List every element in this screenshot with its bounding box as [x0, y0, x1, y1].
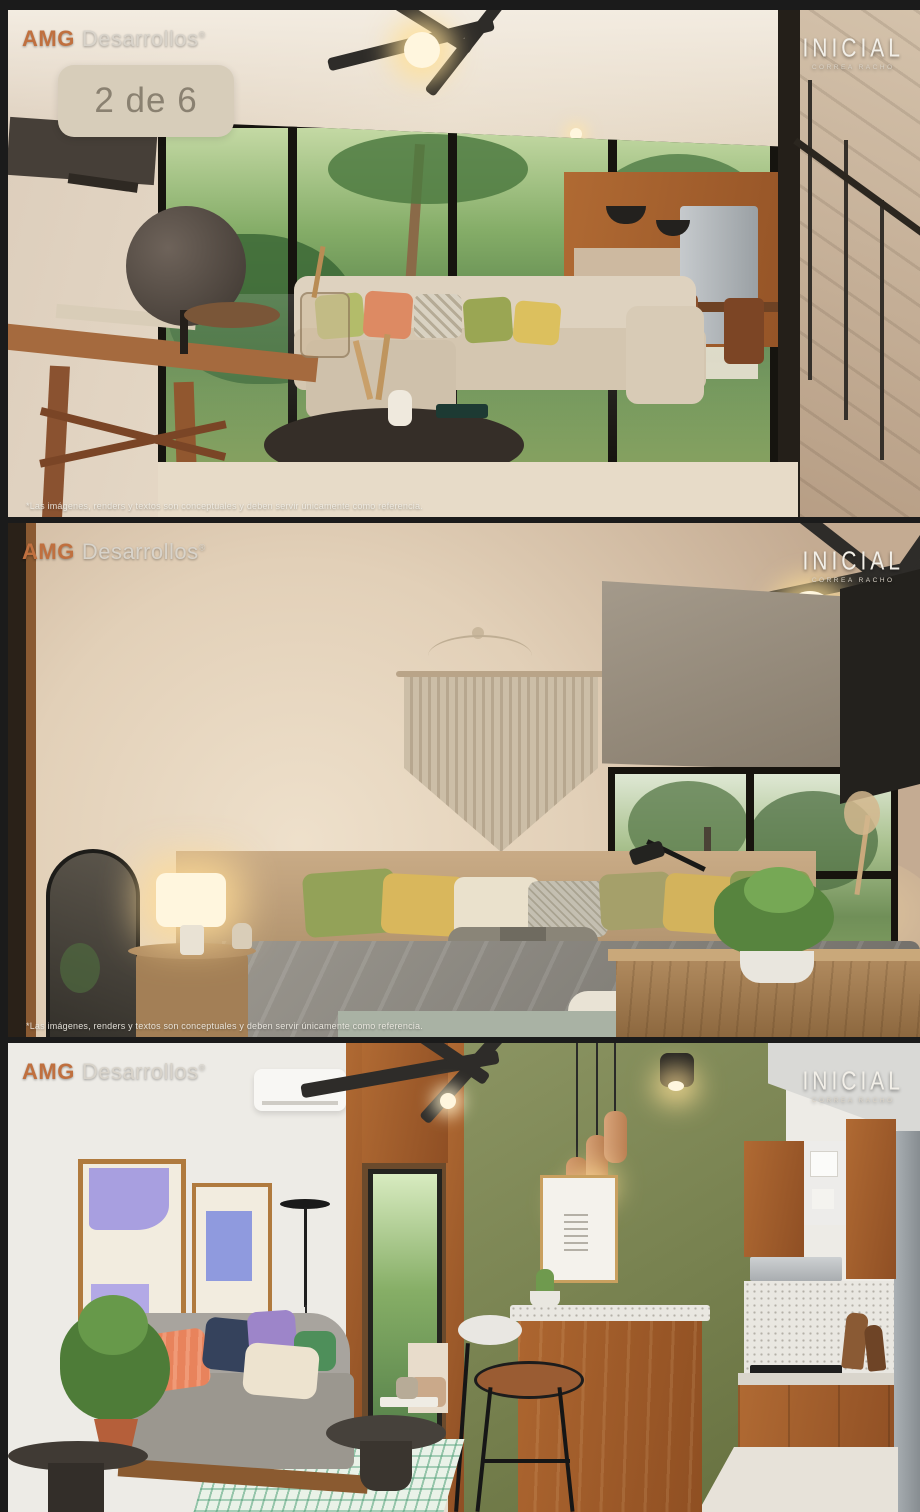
inicial-logo-subtitle: CORREA RACHO: [802, 1097, 904, 1104]
coffee-table-base: [360, 1441, 412, 1491]
stair-railing: [808, 80, 812, 380]
amg-logo: AMGDesarrollos®: [22, 539, 206, 565]
art-shape-lavender: [89, 1168, 169, 1230]
countertop: [738, 1373, 894, 1385]
art-shape-lavender: [206, 1211, 252, 1281]
inicial-logo-subtitle: CORREA RACHO: [802, 64, 904, 71]
pillow-pattern: [414, 294, 462, 338]
pillow-yellow: [380, 873, 465, 937]
poster-sketch: [564, 1211, 588, 1251]
inicial-logo-title: INICIAL: [802, 547, 904, 577]
amg-logo-suffix: Desarrollos: [82, 26, 199, 51]
amg-logo: AMGDesarrollos®: [22, 26, 206, 52]
pillow-olive: [463, 296, 514, 343]
range-hood: [750, 1257, 842, 1281]
arched-mirror: [46, 849, 140, 1037]
inicial-logo-title: INICIAL: [802, 34, 904, 64]
dining-chair: [724, 298, 764, 364]
potted-plant-highlight: [744, 867, 814, 913]
amg-logo: AMGDesarrollos®: [22, 1059, 206, 1085]
shelf-dishes: [810, 1151, 838, 1177]
cactus-pot: [530, 1291, 560, 1307]
wall-lamp-rod: [304, 1207, 307, 1307]
wall-tv: [840, 569, 920, 804]
door-frame-wood: [26, 523, 36, 1037]
image-counter-badge: 2 de 6: [58, 65, 234, 137]
table-vase: [388, 390, 412, 426]
inicial-logo-subtitle: CORREA RACHO: [802, 577, 904, 584]
disclaimer-text: *Las imágenes, renders y textos son conc…: [26, 501, 423, 511]
amg-logo-prefix: AMG: [22, 1059, 75, 1084]
gallery-screen: AMGDesarrollos® INICIAL CORREA RACHO 2 d…: [0, 0, 920, 1512]
amg-logo-suffix: Desarrollos: [82, 1059, 199, 1084]
table-lamp-shade: [156, 873, 226, 927]
ac-vent: [262, 1101, 338, 1105]
inicial-logo: INICIAL CORREA RACHO: [802, 34, 904, 71]
gallery-image-living-room[interactable]: AMGDesarrollos® INICIAL CORREA RACHO 2 d…: [8, 10, 920, 517]
pendant-cable: [576, 1043, 578, 1159]
table-vase-small: [396, 1377, 418, 1399]
table-tray: [436, 404, 488, 418]
palm-leaves: [328, 134, 528, 204]
stair-gap: [778, 10, 800, 517]
amg-logo-prefix: AMG: [22, 539, 75, 564]
inicial-logo: INICIAL CORREA RACHO: [802, 1067, 904, 1104]
stool-footrest: [484, 1459, 570, 1463]
island-grain: [518, 1321, 702, 1512]
pillow-yellow: [512, 300, 561, 346]
pendant-cable: [614, 1043, 616, 1113]
ceiling-fan-light: [440, 1093, 456, 1109]
stair-railing: [880, 200, 884, 460]
gallery-image-bedroom[interactable]: AMGDesarrollos® INICIAL CORREA RACHO *La…: [8, 523, 920, 1037]
small-vase: [232, 923, 252, 949]
shelf-dishes: [812, 1189, 834, 1209]
pendant-cable: [596, 1043, 598, 1137]
disclaimer-text: *Las imágenes, renders y textos son conc…: [26, 1021, 423, 1031]
amg-logo-prefix: AMG: [22, 26, 75, 51]
monstera-leaves: [78, 1295, 148, 1355]
open-shelf: [804, 1141, 846, 1225]
amg-logo-suffix: Desarrollos: [82, 539, 199, 564]
pillow-coral: [362, 290, 413, 339]
decor-bowl: [184, 302, 280, 328]
island-countertop: [510, 1305, 710, 1321]
inicial-logo: INICIAL CORREA RACHO: [802, 547, 904, 584]
ceiling-fan-light: [404, 32, 440, 68]
mirror-plant-reflection: [60, 943, 100, 993]
spotlight-bulb: [668, 1081, 684, 1091]
inicial-logo-title: INICIAL: [802, 1067, 904, 1097]
pillow-cream: [242, 1342, 320, 1400]
registered-mark: ®: [199, 543, 206, 553]
side-table-base: [48, 1463, 104, 1512]
registered-mark: ®: [199, 1063, 206, 1073]
plant-bowl: [740, 951, 814, 983]
gallery-image-kitchen-living[interactable]: AMGDesarrollos® INICIAL CORREA RACHO: [8, 1043, 920, 1512]
registered-mark: ®: [199, 30, 206, 40]
table-lamp-base: [180, 925, 204, 955]
pampas-plume: [844, 791, 880, 835]
stair-steps: [800, 10, 920, 517]
upper-cabinet: [744, 1141, 804, 1257]
glass-vase: [300, 292, 350, 358]
stool-seat-white: [458, 1315, 522, 1345]
upper-cabinet: [846, 1119, 896, 1279]
sofa-armrest: [626, 306, 704, 404]
macrame-rod: [396, 671, 606, 677]
pendant-terracotta: [604, 1111, 627, 1163]
